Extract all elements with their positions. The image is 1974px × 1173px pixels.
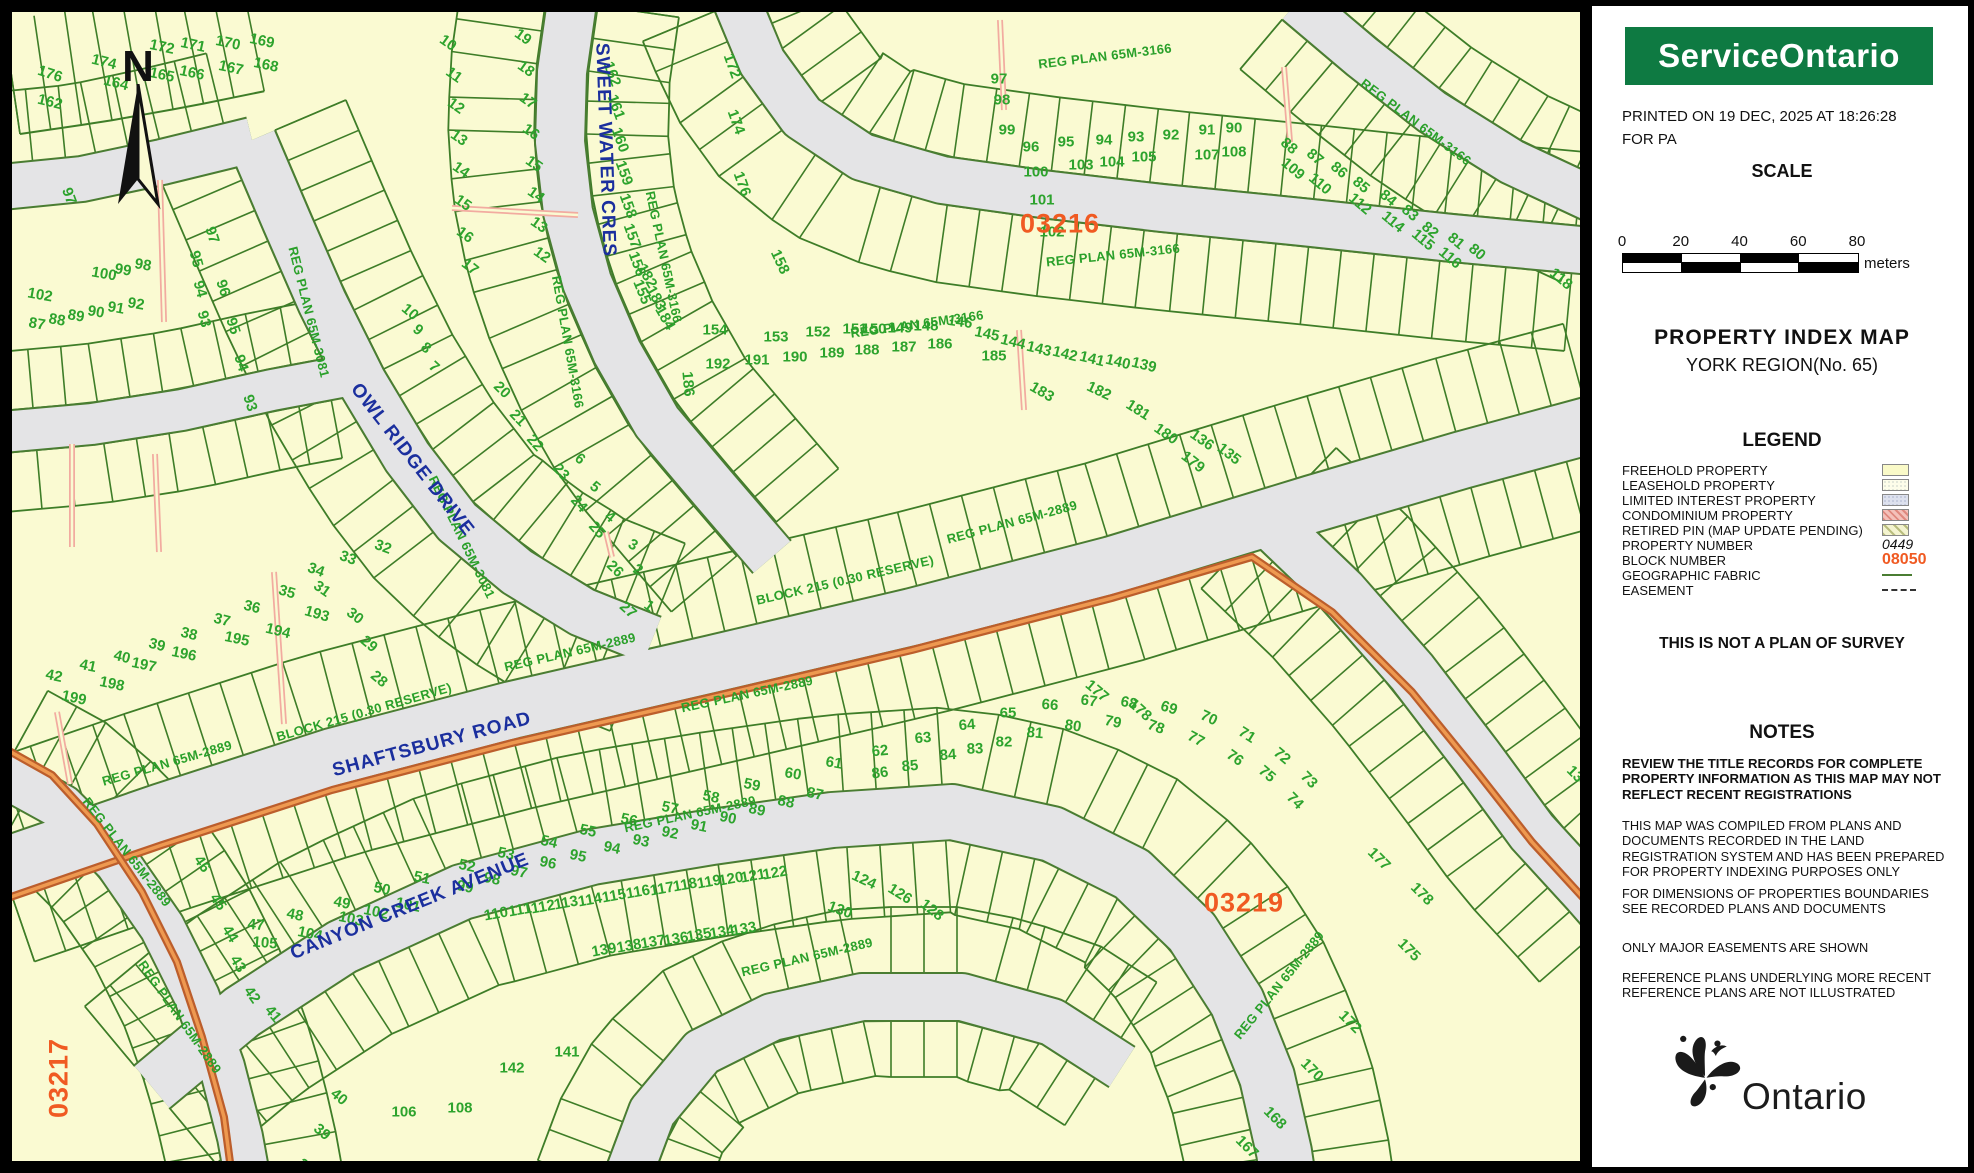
legend-row: LIMITED INTEREST PROPERTY (1622, 493, 1942, 508)
legend-label: CONDOMINIUM PROPERTY (1622, 508, 1793, 523)
lot-number: 99 (999, 122, 1016, 139)
lot-number: 91 (106, 298, 125, 318)
lot-number: 88 (47, 310, 66, 330)
legend-swatch-limited-interest (1882, 494, 1909, 506)
lot-number: 108 (447, 1100, 472, 1117)
lot-number: 190 (782, 349, 807, 366)
lot-number: 66 (1041, 696, 1059, 714)
legend-block-number-sample: 08050 (1882, 552, 1927, 567)
serviceontario-logo: ServiceOntario (1625, 27, 1933, 85)
lot-number: 106 (391, 1104, 416, 1121)
lot-number: 83 (966, 740, 983, 758)
lot-number: 80 (1064, 716, 1083, 735)
lot-number: 105 (1131, 149, 1156, 166)
lot-number: 92 (1163, 127, 1180, 144)
lot-number: 95 (1058, 134, 1075, 151)
legend-geographic-fabric-line (1882, 569, 1912, 576)
lot-number: 103 (1068, 157, 1093, 174)
legend-label: BLOCK NUMBER (1622, 553, 1726, 568)
lot-number: 101 (1029, 192, 1054, 209)
map-subtitle: YORK REGION(No. 65) (1596, 355, 1968, 376)
lot-number: 51 (412, 868, 432, 888)
lot-number: 99 (113, 260, 132, 280)
scale-unit: meters (1864, 255, 1910, 272)
trillium-icon (1666, 1028, 1744, 1112)
lot-number: 89 (66, 306, 85, 326)
lot-number: 62 (871, 742, 889, 760)
lot-number: 153 (763, 329, 788, 346)
lot-number: 191 (744, 352, 769, 369)
lot-number: 96 (1023, 139, 1040, 156)
lot-number: 42 (44, 666, 64, 686)
scale-tick-labels: 020406080 (1622, 233, 1858, 249)
legend: FREEHOLD PROPERTYLEASEHOLD PROPERTYLIMIT… (1622, 463, 1942, 598)
map-canvas: 1761621741641721711701691651661671681021… (12, 12, 1580, 1161)
legend-property-number-sample: 0449 (1882, 537, 1913, 552)
lot-number: 189 (819, 345, 844, 362)
lot-number: 92 (126, 294, 145, 314)
lot-number: 87 (805, 784, 825, 804)
legend-row: CONDOMINIUM PROPERTY (1622, 508, 1942, 523)
legend-row: LEASEHOLD PROPERTY (1622, 478, 1942, 493)
notes-title: NOTES (1596, 722, 1968, 744)
lot-number: 61 (824, 753, 843, 773)
legend-row: GEOGRAPHIC FABRIC (1622, 568, 1942, 583)
lot-number: 185 (981, 348, 1006, 365)
scale-bar (1622, 253, 1859, 273)
legend-label: FREEHOLD PROPERTY (1622, 463, 1768, 478)
lot-number: 91 (1199, 122, 1216, 139)
lot-number: 84 (939, 746, 957, 764)
lot-number: 100 (1023, 164, 1048, 181)
note-reference-plans: REFERENCE PLANS UNDERLYING MORE RECENT R… (1622, 970, 1948, 1001)
block-number-label: 03219 (1204, 888, 1284, 919)
lot-number: 142 (499, 1060, 524, 1077)
lot-number: 94 (602, 838, 622, 858)
legend-title: LEGEND (1596, 430, 1968, 452)
lot-number: 93 (631, 831, 651, 851)
lot-number: 98 (994, 92, 1011, 109)
lot-number: 90 (1226, 120, 1243, 137)
lot-number: 188 (854, 342, 879, 359)
legend-swatch-retired-pin (1882, 524, 1909, 536)
block-number-label: 03216 (1020, 209, 1100, 240)
lot-number: 154 (702, 322, 727, 339)
north-arrow-icon: N (108, 42, 168, 212)
lot-number: 187 (891, 339, 916, 356)
scale-tick-label: 60 (1790, 233, 1807, 250)
lot-number: 90 (86, 302, 105, 322)
note-dimensions: FOR DIMENSIONS OF PROPERTIES BOUNDARIES … (1622, 886, 1948, 917)
lot-number: 63 (914, 729, 932, 747)
legend-swatch-leasehold (1882, 479, 1909, 491)
printed-line2: FOR PA (1622, 128, 1952, 151)
scale-tick-label: 80 (1849, 233, 1866, 250)
lot-number: 87 (27, 314, 46, 334)
lot-number: 47 (247, 916, 265, 934)
legend-easement-line (1882, 584, 1916, 591)
side-panel: ServiceOntario PRINTED ON 19 DEC, 2025 A… (1592, 6, 1968, 1167)
note-compiled: THIS MAP WAS COMPILED FROM PLANS AND DOC… (1622, 818, 1948, 880)
lot-number: 104 (1099, 154, 1124, 171)
legend-label: EASEMENT (1622, 583, 1694, 598)
ontario-logo: Ontario (1666, 1028, 1906, 1128)
lot-number: 96 (538, 853, 558, 873)
side-panel-content: ServiceOntario PRINTED ON 19 DEC, 2025 A… (1596, 6, 1968, 1167)
scale-title: SCALE (1596, 161, 1968, 182)
lot-number: 94 (1096, 132, 1113, 149)
survey-disclaimer: THIS IS NOT A PLAN OF SURVEY (1596, 635, 1968, 653)
scale-tick-label: 20 (1672, 233, 1689, 250)
lot-number: 86 (871, 763, 890, 782)
lot-number: 107 (1194, 147, 1219, 164)
lot-number: 85 (901, 757, 919, 775)
lot-number: 60 (783, 764, 802, 784)
map-frame: 1761621741641721711701691651661671681021… (6, 6, 1586, 1167)
lot-number: 141 (554, 1044, 579, 1061)
lot-number: 186 (927, 336, 952, 353)
legend-row: EASEMENT (1622, 583, 1942, 598)
legend-row: FREEHOLD PROPERTY (1622, 463, 1942, 478)
lot-number: 152 (805, 324, 830, 341)
lot-number: 88 (776, 792, 796, 812)
lot-number: 108 (1221, 144, 1246, 161)
lot-number: 41 (78, 656, 98, 676)
printed-timestamp: PRINTED ON 19 DEC, 2025 AT 18:26:28 FOR … (1622, 105, 1952, 151)
printed-line1: PRINTED ON 19 DEC, 2025 AT 18:26:28 (1622, 105, 1952, 128)
property-index-map-page: 1761621741641721711701691651661671681021… (0, 0, 1974, 1173)
lot-number: 48 (285, 905, 305, 925)
lot-number: 192 (705, 356, 730, 373)
serviceontario-logo-text: ServiceOntario (1658, 37, 1900, 75)
legend-swatch-condominium (1882, 509, 1909, 521)
lot-number: 50 (372, 879, 392, 899)
lot-number: 98 (133, 255, 152, 275)
legend-label: GEOGRAPHIC FABRIC (1622, 568, 1761, 583)
lot-number: 65 (1000, 705, 1017, 722)
lot-number: 97 (991, 71, 1008, 88)
lot-number: 64 (958, 716, 976, 734)
map-title: PROPERTY INDEX MAP (1596, 326, 1968, 350)
ontario-logo-text: Ontario (1742, 1076, 1867, 1118)
scale-tick-label: 0 (1618, 233, 1626, 250)
lot-number: 79 (1103, 712, 1123, 732)
lot-number: 82 (996, 734, 1013, 751)
legend-label: LIMITED INTEREST PROPERTY (1622, 493, 1816, 508)
block-number-label: 03217 (44, 1038, 75, 1118)
lot-number: 93 (1128, 129, 1145, 146)
lot-number: 186 (678, 371, 697, 397)
scale-tick-label: 40 (1731, 233, 1748, 250)
lot-number: 54 (539, 832, 559, 852)
legend-label: RETIRED PIN (MAP UPDATE PENDING) (1622, 523, 1863, 538)
lot-number: 95 (568, 846, 588, 866)
lot-number: 55 (578, 821, 598, 841)
legend-label: LEASEHOLD PROPERTY (1622, 478, 1775, 493)
note-review-title-records: REVIEW THE TITLE RECORDS FOR COMPLETE PR… (1622, 756, 1948, 802)
legend-row: BLOCK NUMBER08050 (1622, 553, 1942, 568)
legend-swatch-freehold (1882, 464, 1909, 476)
lot-number: 105 (252, 933, 278, 952)
legend-label: PROPERTY NUMBER (1622, 538, 1753, 553)
note-easements: ONLY MAJOR EASEMENTS ARE SHOWN (1622, 940, 1948, 955)
lot-number: 81 (1026, 724, 1044, 742)
